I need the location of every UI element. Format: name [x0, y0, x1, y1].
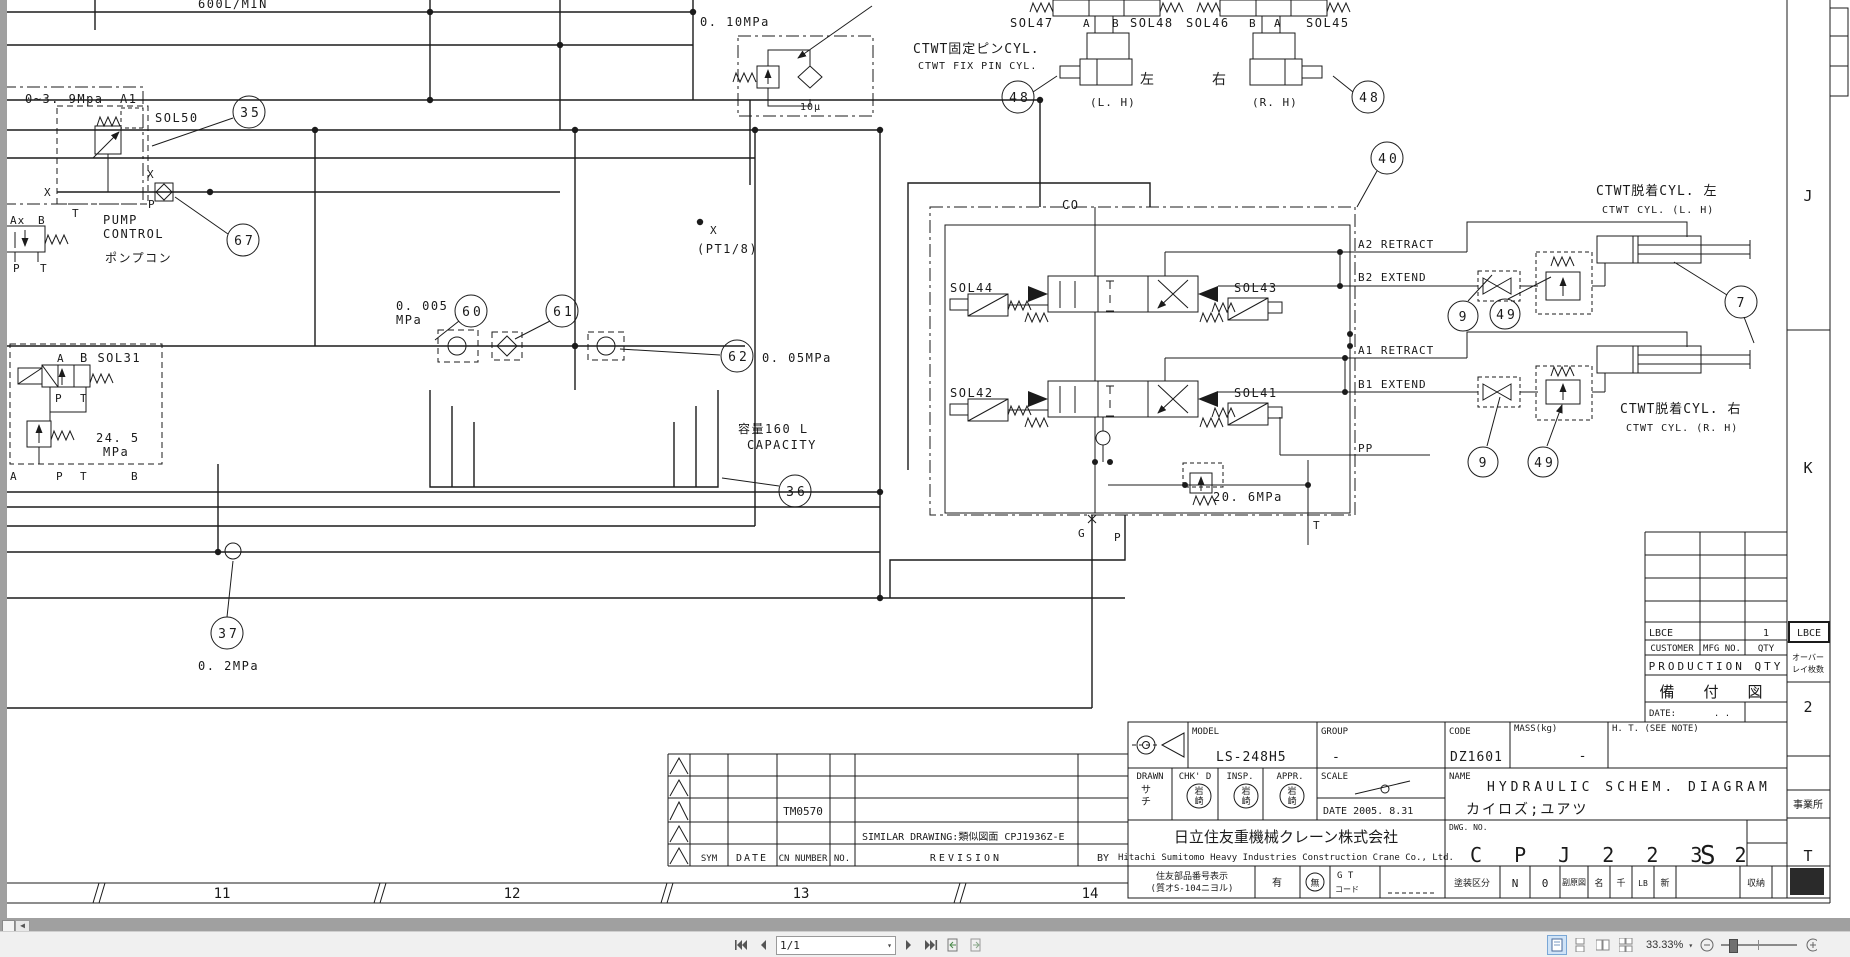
port-label-a: A — [57, 352, 65, 365]
port-label-t: T — [80, 392, 88, 405]
port-label-t: T — [80, 470, 88, 483]
callout-48-right: 48 — [1359, 91, 1381, 106]
callout-60: 60 — [462, 305, 484, 320]
page-indicator: 1/1 — [780, 939, 800, 952]
port-label-p: P — [55, 392, 63, 405]
chevron-down-icon: ▾ — [887, 941, 892, 950]
callout-48-left: 48 — [1009, 91, 1031, 106]
zone-number-13: 13 — [793, 886, 810, 902]
name-label: NAME — [1449, 772, 1471, 782]
overlay-count: 2 — [1803, 698, 1812, 716]
sol41-label: SOL41 — [1234, 386, 1278, 400]
model-label: MODEL — [1192, 727, 1219, 737]
port-label-t: T — [40, 262, 48, 275]
ctwt-fix-label-en: CTWT FIX PIN CYL. — [918, 61, 1037, 72]
continuous-view-button[interactable] — [1571, 936, 1589, 954]
capacity-label-en: CAPACITY — [747, 438, 817, 452]
yes-cell: 有 — [1272, 876, 1282, 889]
drawn-signature: チ — [1141, 796, 1151, 808]
dwg-no-suffix: S — [1700, 841, 1716, 871]
office-label: 事業所 — [1793, 798, 1823, 811]
ctwt-cyl-r-label-jp: CTWT脱着CYL. 右 — [1620, 401, 1741, 417]
by-header: BY — [1097, 853, 1109, 864]
code-value: DZ1601 — [1450, 750, 1503, 765]
viewer-toolbar: 1/1 ▾ 33.33% ▾ — [0, 931, 1850, 957]
lh-label: (L. H) — [1090, 96, 1136, 109]
pt-thread-label: (PT1/8) — [697, 242, 758, 256]
pressure-0005-value: 0. 005 — [396, 299, 448, 313]
pressure-02-label: 0. 2MPa — [198, 659, 259, 673]
code-label: CODE — [1449, 727, 1471, 737]
date-dots: . . — [1714, 709, 1730, 719]
page-navigation: 1/1 ▾ — [732, 935, 984, 955]
pressure-245-unit: MPa — [103, 445, 129, 459]
ht-note: H. T. (SEE NOTE) — [1612, 724, 1699, 734]
sol50-label: SOL50 — [155, 111, 199, 125]
port-label-ax: Ax — [10, 214, 25, 227]
zoom-in-button[interactable] — [1802, 936, 1820, 954]
port-label-b: B — [131, 470, 139, 483]
pressure-range-label: 0~3. 9Mpa — [25, 92, 104, 106]
b2-extend-label: B2 EXTEND — [1358, 271, 1427, 284]
next-page-button[interactable] — [900, 936, 918, 954]
sym-header: SYM — [701, 854, 718, 864]
hydraulic-schematic-page: 0~3. 9Mpa A1 SOL50 X X P T PUMP CONTROL … — [0, 0, 1850, 918]
sol31-label: B SOL31 — [80, 351, 141, 365]
mass-value: - — [1579, 749, 1588, 764]
zoom-dropdown-caret[interactable]: ▾ — [1688, 941, 1693, 950]
pdf-viewer-window: 0~3. 9Mpa A1 SOL50 X X P T PUMP CONTROL … — [0, 0, 1850, 957]
paint-value-1: N — [1512, 877, 1519, 890]
scale-label: SCALE — [1321, 772, 1348, 782]
last-page-button[interactable] — [922, 936, 940, 954]
pressure-010-label: 0. 10MPa — [700, 15, 770, 29]
no-cell: 無 — [1310, 877, 1319, 889]
sol42-label: SOL42 — [950, 386, 994, 400]
pump-control-label-1: PUMP — [103, 213, 138, 227]
pump-control-label-jp: ポンプコン — [105, 251, 172, 265]
port-label-x: X — [147, 168, 155, 181]
mass-label: MASS(kg) — [1514, 724, 1557, 734]
port-label-x: X — [44, 186, 52, 199]
previous-page-button[interactable] — [754, 936, 772, 954]
port-label-b: B — [1112, 17, 1120, 30]
a1-retract-label: A1 RETRACT — [1358, 344, 1434, 357]
flow-rate-label: 600L/MIN — [198, 0, 268, 11]
port-label-g: G — [1078, 527, 1086, 540]
port-label-b: B — [1249, 17, 1257, 30]
shuno-cell: 収納 — [1747, 877, 1765, 889]
port-label-b: B — [38, 214, 46, 227]
insp-header: INSP. — [1226, 772, 1253, 782]
view-controls: 33.33% ▾ — [1548, 935, 1820, 955]
mfg-no-header: MFG NO. — [1703, 644, 1741, 654]
customer-header: CUSTOMER — [1650, 644, 1694, 654]
callout-40: 40 — [1378, 152, 1400, 167]
lb-cell: LB — [1638, 879, 1648, 888]
overlay-label-2: レイ枚数 — [1792, 664, 1824, 674]
sol47-label: SOL47 — [1010, 16, 1054, 30]
next-view-button[interactable] — [966, 936, 984, 954]
svg-text:岩: 岩 — [1241, 785, 1250, 797]
page-left-edge — [0, 0, 7, 918]
pressure-0005-unit: MPa — [396, 313, 422, 327]
fukugenzu-cell: 副原図 — [1562, 878, 1586, 887]
previous-view-button[interactable] — [944, 936, 962, 954]
port-label-p: P — [148, 198, 156, 211]
rh-label: (R. H) — [1252, 96, 1298, 109]
gt-code-2: コード — [1335, 885, 1359, 894]
zone-number-12: 12 — [504, 886, 521, 902]
drawn-header: DRAWN — [1136, 772, 1163, 782]
first-page-button[interactable] — [732, 936, 750, 954]
pressure-245-value: 24. 5 — [96, 431, 140, 445]
zone-letter-j: J — [1803, 187, 1812, 205]
port-label-a: A — [1274, 17, 1282, 30]
date-label: DATE: — [1649, 709, 1676, 719]
parts-label-1: 住友部品番号表示 — [1156, 870, 1228, 882]
sol44-label: SOL44 — [950, 281, 994, 295]
appr-header: APPR. — [1276, 772, 1303, 782]
callout-49-lower: 49 — [1534, 456, 1556, 471]
co-label: CO — [1062, 198, 1079, 212]
callout-67: 67 — [234, 234, 256, 249]
model-value: LS-248H5 — [1216, 750, 1287, 765]
svg-text:崎: 崎 — [1241, 795, 1250, 807]
port-label-p: P — [13, 262, 21, 275]
sol45-label: SOL45 — [1306, 16, 1350, 30]
svg-text:崎: 崎 — [1287, 795, 1296, 807]
callout-61: 61 — [553, 305, 575, 320]
callout-37: 37 — [218, 627, 240, 642]
zoom-level-value[interactable]: 33.33% — [1646, 939, 1683, 951]
overlay-label-1: オーバー — [1792, 653, 1824, 662]
callout-36: 36 — [786, 485, 808, 500]
mei-cell: 名 — [1594, 877, 1603, 889]
facing-view-button[interactable] — [1594, 936, 1612, 954]
zone-letter-k: K — [1803, 459, 1812, 477]
sol46-label: SOL46 — [1186, 16, 1230, 30]
bifuzu-label: 備 付 図 — [1659, 683, 1772, 701]
dwg-no-label: DWG. NO. — [1449, 823, 1488, 832]
sol43-label: SOL43 — [1234, 281, 1278, 295]
pump-control-label-2: CONTROL — [103, 227, 164, 241]
date-value: DATE 2005. 8.31 — [1323, 806, 1413, 817]
sen-cell: 千 — [1616, 878, 1625, 889]
callout-7: 7 — [1737, 296, 1748, 311]
paint-label: 塗装区分 — [1454, 877, 1490, 889]
gt-code-1: G T — [1337, 871, 1354, 881]
drawing-name-en: HYDRAULIC SCHEM. DIAGRAM — [1487, 780, 1771, 795]
horizontal-scrollbar-track[interactable] — [0, 918, 1850, 931]
drawing-name-jp: カイロズ;ユアツ — [1466, 802, 1588, 818]
port-label-a1: A1 — [120, 92, 137, 106]
callout-9-lower: 9 — [1479, 456, 1490, 471]
svg-text:岩: 岩 — [1287, 785, 1296, 797]
zoom-slider-handle[interactable] — [1729, 939, 1738, 953]
qty-header: QTY — [1758, 644, 1775, 654]
zoom-slider[interactable] — [1721, 936, 1797, 954]
zone-number-14: 14 — [1082, 886, 1099, 902]
single-page-view-button[interactable] — [1548, 936, 1566, 954]
shin-cell: 新 — [1660, 877, 1669, 889]
port-label-p: P — [56, 470, 64, 483]
capacity-label-jp: 容量160 L — [738, 421, 809, 436]
port-label-p: P — [1114, 531, 1122, 544]
zoom-out-button[interactable] — [1698, 936, 1716, 954]
cn-number-header: CN NUMBER — [779, 854, 828, 864]
ctwt-cyl-l-label-en: CTWT CYL. (L. H) — [1602, 205, 1714, 216]
production-qty-label: PRODUCTION QTY — [1649, 660, 1784, 673]
port-label-a: A — [10, 470, 18, 483]
pressure-206-label: 20. 6MPa — [1213, 490, 1283, 504]
paint-value-2: 0 — [1542, 877, 1549, 890]
group-value: - — [1332, 750, 1341, 765]
chkd-header: CHK' D — [1179, 772, 1212, 782]
svg-text:崎: 崎 — [1194, 795, 1203, 807]
port-label-x: X — [710, 224, 718, 237]
stamp-box — [1790, 868, 1824, 895]
no-header: NO. — [834, 854, 850, 864]
revision-header: REVISION — [930, 853, 1002, 864]
zone-letter-t: T — [1803, 847, 1812, 865]
side-lbce-label: LBCE — [1797, 628, 1821, 639]
callout-49-upper: 49 — [1496, 308, 1518, 323]
lbce-cell: LBCE — [1649, 628, 1673, 639]
b1-extend-label: B1 EXTEND — [1358, 378, 1427, 391]
left-jp-label: 左 — [1140, 72, 1154, 88]
callout-35: 35 — [240, 106, 262, 121]
continuous-facing-view-button[interactable] — [1617, 936, 1635, 954]
ctwt-cyl-l-label-jp: CTWT脱着CYL. 左 — [1596, 183, 1717, 199]
callout-62: 62 — [728, 350, 750, 365]
zone-number-11: 11 — [214, 886, 231, 902]
a2-retract-label: A2 RETRACT — [1358, 238, 1434, 251]
pp-label: PP — [1358, 442, 1373, 455]
similar-drawing: SIMILAR DRAWING:類似図面 CPJ1936Z-E — [862, 831, 1065, 843]
right-jp-label: 右 — [1212, 72, 1226, 88]
ctwt-cyl-r-label-en: CTWT CYL. (R. H) — [1626, 423, 1738, 434]
lbce-qty-cell: 1 — [1763, 628, 1769, 639]
drawn-signature: サ — [1141, 784, 1151, 796]
svg-text:岩: 岩 — [1194, 785, 1203, 797]
company-name-jp: 日立住友重機械クレーン株式会社 — [1174, 828, 1398, 846]
company-name-en: Hitachi Sumitomo Heavy Industries Constr… — [1118, 853, 1454, 863]
pressure-005-label: 0. 05MPa — [762, 351, 832, 365]
page-number-input[interactable]: 1/1 ▾ — [776, 936, 896, 955]
parts-label-2: (質オS-104ニヨル) — [1151, 882, 1234, 894]
filter-rating-label: 10μ — [800, 102, 821, 113]
port-label-t: T — [1313, 519, 1321, 532]
sol48-label: SOL48 — [1130, 16, 1174, 30]
callout-9-upper: 9 — [1459, 310, 1470, 325]
ctwt-fix-label-jp: CTWT固定ピンCYL. — [913, 42, 1040, 57]
date-header: DATE — [736, 853, 768, 864]
tm-number: TM0570 — [783, 805, 823, 818]
port-label-a: A — [1083, 17, 1091, 30]
port-label-t: T — [72, 207, 80, 220]
group-label: GROUP — [1321, 727, 1349, 737]
